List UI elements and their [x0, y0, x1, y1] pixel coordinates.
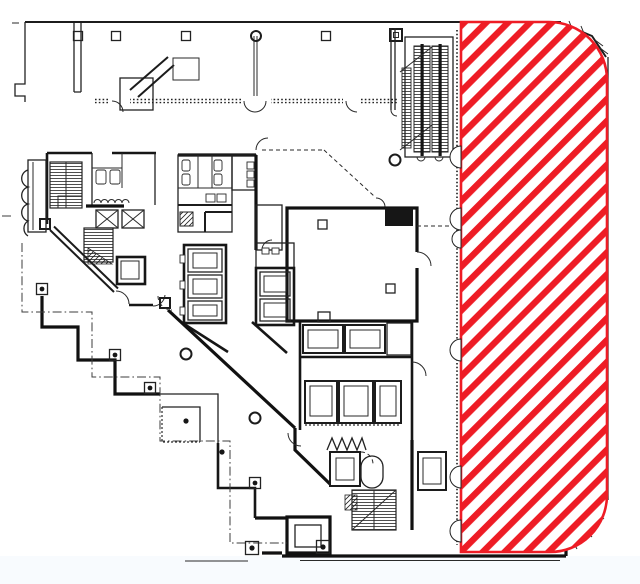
dot-column [219, 449, 224, 454]
travelator-treads [402, 68, 411, 148]
duct-shaft [180, 212, 193, 226]
dot-column [183, 418, 188, 423]
floor-plan-drawing [0, 0, 640, 584]
door-gap [241, 96, 271, 104]
toilet-fixture [96, 170, 106, 184]
corner-shaft-block [385, 208, 413, 226]
stair-c-hatch [345, 495, 357, 510]
door-gap [413, 252, 420, 268]
wc-fixture [247, 171, 254, 178]
escalator-handrail [421, 44, 424, 156]
lift-door-nib [180, 281, 185, 289]
hatched-area [461, 22, 607, 552]
fixture [262, 248, 269, 254]
toilet-fixture [214, 174, 222, 185]
wc-fixture [247, 162, 254, 169]
lift-door-nib [180, 307, 185, 315]
wc-fixture [247, 180, 254, 187]
toilet-fixture [110, 170, 120, 184]
highlight-region [450, 22, 607, 552]
sink-fixture [217, 194, 226, 202]
toilet-fixture [182, 160, 190, 171]
sink-fixture [206, 194, 215, 202]
door-gap [108, 96, 130, 104]
toilet-fixture [182, 174, 190, 185]
fixture [272, 248, 279, 254]
escalator-handrail [439, 44, 442, 156]
lift-door-nib [180, 255, 185, 263]
floor-plan-page [0, 0, 640, 584]
toilet-fixture [214, 160, 222, 171]
